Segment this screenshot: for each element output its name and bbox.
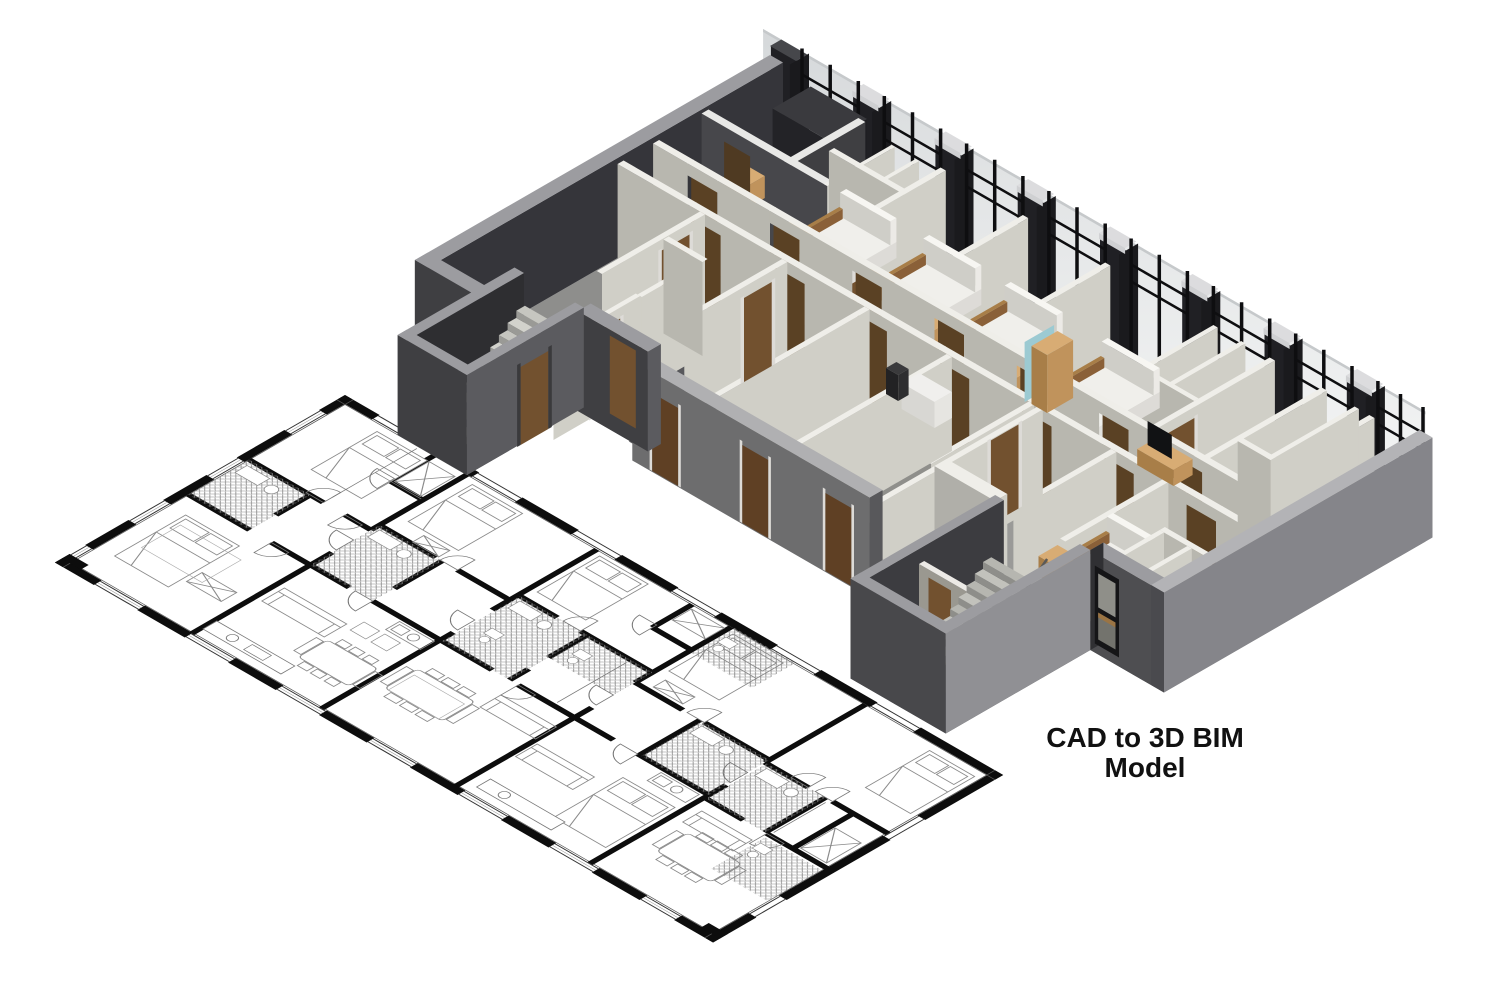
svg-text:Model: Model <box>1105 752 1186 783</box>
svg-text:CAD to 3D BIM: CAD to 3D BIM <box>1046 722 1244 753</box>
